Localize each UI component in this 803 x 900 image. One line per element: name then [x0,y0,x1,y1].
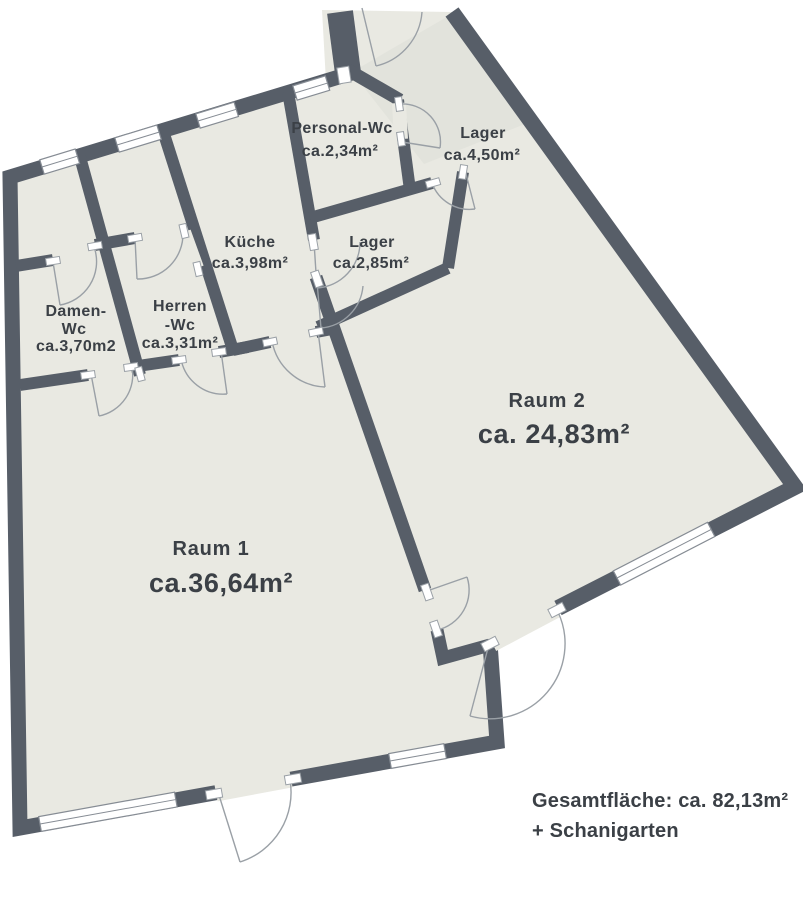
label-damen-area: ca.3,70m2 [36,338,116,355]
schanigarten-text: + Schanigarten [532,820,679,842]
label-raum1-name: Raum 1 [172,538,249,560]
label-herren-area: ca.3,31m² [142,335,219,352]
label-herren-line1: Herren [153,298,207,315]
label-raum1-area: ca.36,64m² [149,568,293,598]
label-personalwc-area: ca.2,34m² [302,143,379,160]
label-lager450-name: Lager [460,125,506,142]
label-personalwc-name: Personal-Wc [291,120,392,137]
label-raum2-name: Raum 2 [508,390,585,412]
label-kueche-name: Küche [225,234,276,251]
entrance-wall-stub [340,12,348,73]
label-damen-line2: Wc [62,321,87,338]
label-damen-line1: Damen- [45,303,106,320]
label-herren-line2: -Wc [165,317,196,334]
floorplan-page: Personal-Wc ca.2,34m² Lager ca.4,50m² Kü… [0,0,803,900]
label-raum2-area: ca. 24,83m² [478,419,630,449]
footer: Gesamtfläche: ca. 82,13m² + Schanigarten [532,790,788,842]
label-lager285-name: Lager [349,234,395,251]
label-lager285-area: ca.2,85m² [333,255,410,272]
floorplan-drawing: Personal-Wc ca.2,34m² Lager ca.4,50m² Kü… [0,0,803,900]
label-kueche-area: ca.3,98m² [212,255,289,272]
label-lager450-area: ca.4,50m² [444,147,521,164]
total-area-text: Gesamtfläche: ca. 82,13m² [532,790,788,812]
